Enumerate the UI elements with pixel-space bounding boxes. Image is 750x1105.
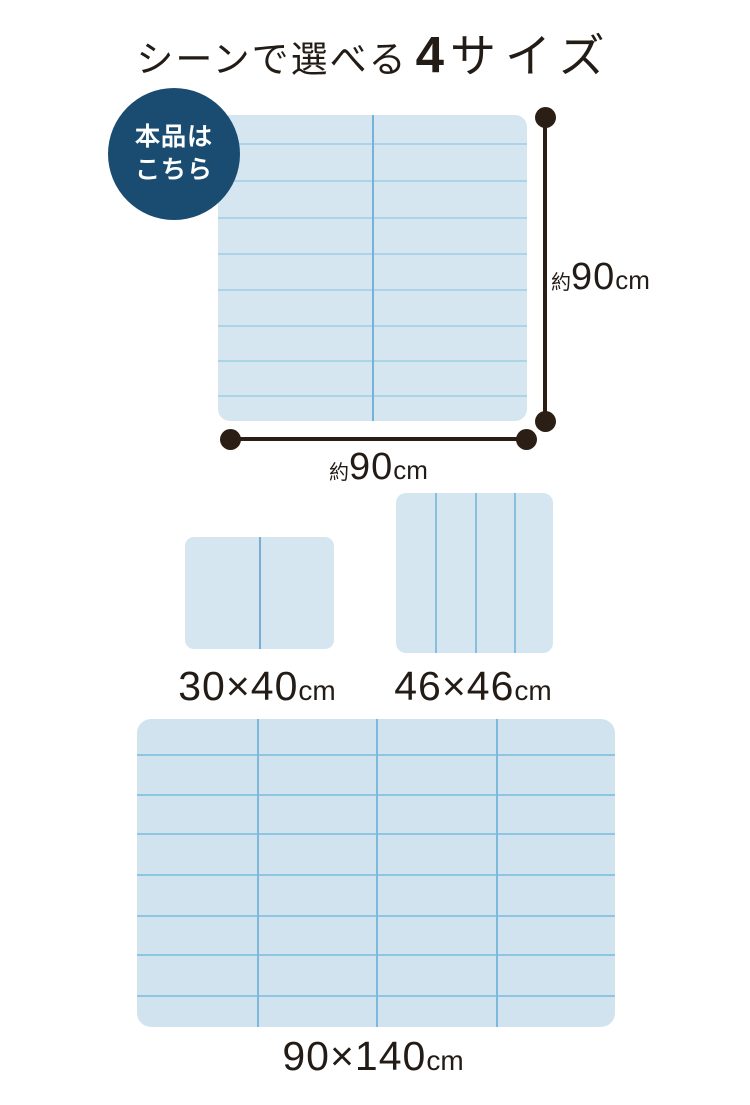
dimension-endpoint-dot	[516, 429, 537, 450]
fold-line-vertical	[435, 493, 437, 653]
size-diagram-page: シーンで選べる 4 サイズ 本品は こちら 約90cm 約90cm 30×40c…	[0, 0, 750, 1105]
mat-46x46	[396, 493, 553, 653]
dimension-endpoint-dot	[220, 429, 241, 450]
height-unit: cm	[615, 267, 650, 293]
title-prefix: シーンで選べる	[136, 29, 407, 83]
approx-prefix: 約	[551, 273, 571, 293]
size-value: 90×140	[282, 1036, 426, 1077]
mat-30x40	[185, 537, 334, 649]
title-size-count: 4	[416, 25, 444, 84]
size-label-46x46: 46×46cm	[373, 666, 573, 707]
badge-line2: こちら	[135, 154, 213, 187]
height-dimension-label: 約90cm	[551, 258, 650, 296]
dimension-endpoint-dot	[535, 107, 556, 128]
height-value: 90	[571, 258, 615, 296]
title-suffix: サイズ	[450, 20, 614, 86]
this-product-badge: 本品は こちら	[108, 88, 240, 220]
width-dimension-line	[230, 437, 527, 441]
fold-line-vertical	[514, 493, 516, 653]
width-unit: cm	[393, 457, 428, 483]
size-label-30x40: 30×40cm	[157, 666, 357, 707]
size-value: 30×40	[178, 666, 298, 707]
page-title: シーンで選べる 4 サイズ	[0, 20, 750, 86]
fold-line-vertical	[475, 493, 477, 653]
height-dimension-line	[543, 117, 547, 422]
width-dimension-label: 約90cm	[230, 448, 527, 486]
size-unit: cm	[514, 677, 551, 705]
mat-90x90-main	[218, 115, 527, 421]
approx-prefix: 約	[329, 463, 349, 483]
mat-90x140	[137, 719, 615, 1027]
fold-line-vertical	[372, 115, 374, 421]
fold-line-vertical	[259, 537, 261, 649]
dimension-endpoint-dot	[535, 411, 556, 432]
size-value: 46×46	[394, 666, 514, 707]
size-label-90x140: 90×140cm	[253, 1036, 493, 1077]
fold-line-vertical	[496, 719, 498, 1027]
size-unit: cm	[426, 1047, 463, 1075]
size-unit: cm	[298, 677, 335, 705]
fold-line-vertical	[257, 719, 259, 1027]
badge-line1: 本品は	[135, 121, 213, 154]
width-value: 90	[349, 448, 393, 486]
fold-line-vertical	[376, 719, 378, 1027]
